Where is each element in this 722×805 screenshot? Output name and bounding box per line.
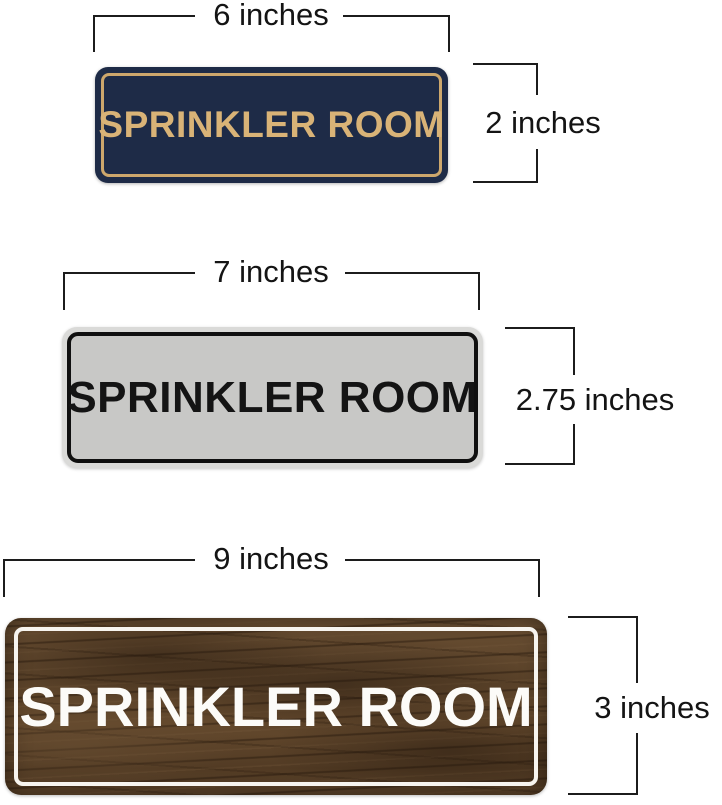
dimension-extension-line — [505, 463, 575, 465]
dimension-end-tick — [538, 559, 540, 597]
dimension-end-tick — [448, 15, 450, 52]
dimension-extension-line — [568, 616, 638, 618]
product-dimensions-diagram: 6 inches SPRINKLER ROOM 2 inches 7 inche… — [0, 0, 722, 805]
dimension-end-tick — [3, 559, 5, 597]
sign-silver-black-face: SPRINKLER ROOM — [67, 332, 478, 463]
height-dimension-label: 2.75 inches — [495, 383, 695, 417]
sign-walnut-wood: SPRINKLER ROOM — [5, 618, 547, 795]
dimension-line — [536, 149, 538, 183]
width-dimension-label: 6 inches — [143, 0, 399, 32]
width-dimension-label: 9 inches — [143, 542, 399, 576]
dimension-extension-line — [473, 181, 538, 183]
dimension-end-tick — [93, 15, 95, 52]
sign-walnut-wood-text: SPRINKLER ROOM — [19, 674, 532, 739]
height-dimension-label: 3 inches — [577, 691, 722, 725]
dimension-extension-line — [473, 63, 538, 65]
sign-navy-gold-text: SPRINKLER ROOM — [98, 104, 444, 146]
sign-navy-gold: SPRINKLER ROOM — [95, 67, 448, 183]
sign-navy-gold-face: SPRINKLER ROOM — [101, 73, 442, 177]
dimension-line — [536, 63, 538, 95]
dimension-end-tick — [63, 272, 65, 310]
width-dimension-label: 7 inches — [143, 255, 399, 289]
sign-silver-black: SPRINKLER ROOM — [62, 327, 483, 468]
height-dimension-label: 2 inches — [463, 106, 623, 140]
dimension-extension-line — [505, 327, 575, 329]
dimension-line — [573, 327, 575, 375]
dimension-extension-line — [568, 793, 638, 795]
sign-silver-black-text: SPRINKLER ROOM — [67, 373, 477, 423]
dimension-line — [573, 424, 575, 465]
dimension-line — [636, 616, 638, 683]
dimension-line — [636, 733, 638, 795]
dimension-end-tick — [478, 272, 480, 310]
sign-walnut-wood-face: SPRINKLER ROOM — [14, 627, 538, 786]
